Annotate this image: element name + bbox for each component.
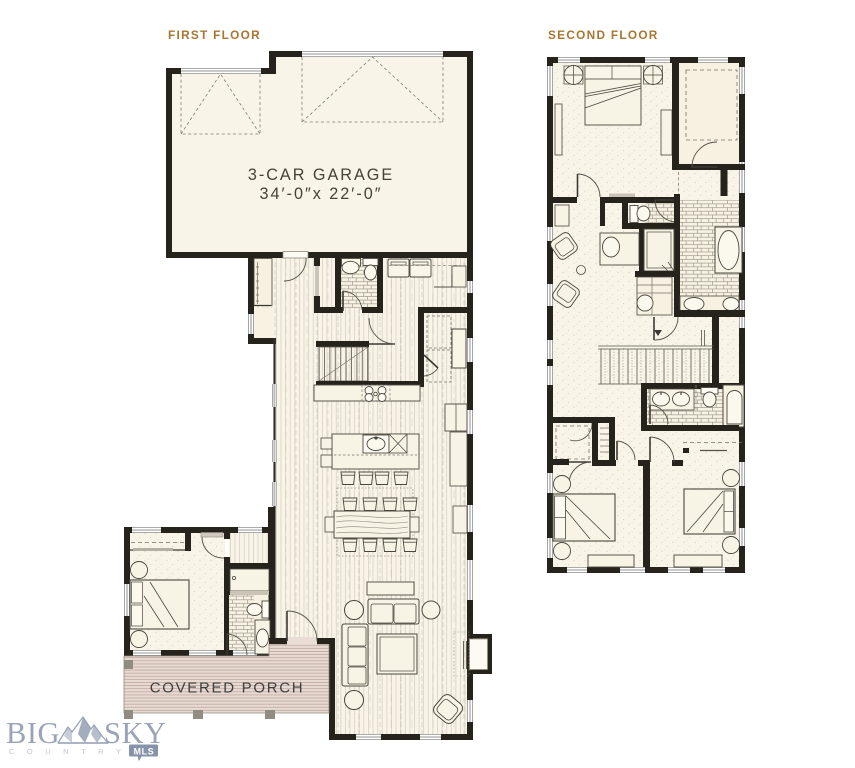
svg-text:SECOND FLOOR: SECOND FLOOR (548, 28, 659, 42)
svg-text:COVERED PORCH: COVERED PORCH (150, 680, 305, 697)
svg-text:COUNTRY: COUNTRY (9, 747, 133, 756)
svg-text:34′-0″x 22′-0″: 34′-0″x 22′-0″ (260, 185, 383, 203)
svg-text:BIG: BIG (6, 716, 60, 750)
svg-text:MLS: MLS (134, 747, 155, 757)
svg-text:FIRST FLOOR: FIRST FLOOR (168, 28, 261, 42)
svg-text:3-CAR GARAGE: 3-CAR GARAGE (248, 166, 394, 184)
